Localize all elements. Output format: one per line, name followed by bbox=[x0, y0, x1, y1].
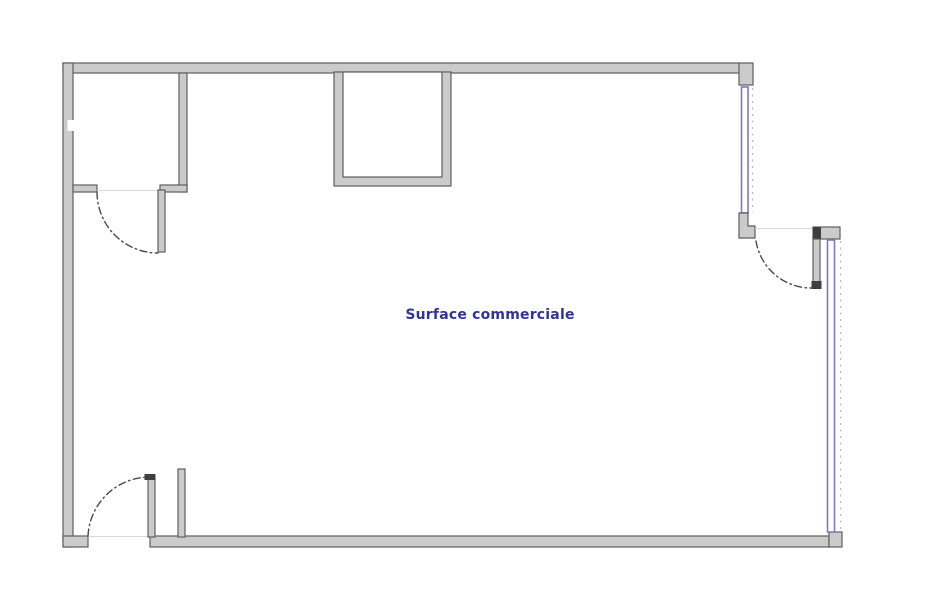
lower-right-window bbox=[828, 240, 835, 532]
service-door-leaf bbox=[148, 479, 155, 537]
floor-plan-page: Surface commerciale bbox=[0, 0, 926, 610]
entrance-door-leaf-cap bbox=[812, 281, 822, 289]
duct-shaft-interior bbox=[343, 72, 442, 177]
entrance-door-swing-arc bbox=[756, 241, 812, 288]
room-label: Surface commerciale bbox=[405, 307, 574, 323]
storage-room-bottom-wall-left bbox=[73, 185, 97, 192]
left-wall bbox=[63, 63, 73, 547]
left-wall-break-notch bbox=[68, 120, 75, 131]
bottom-wall bbox=[150, 536, 829, 547]
bottom-wall-pier bbox=[178, 469, 185, 537]
entrance-door-leaf bbox=[813, 239, 820, 284]
top-right-wall-post bbox=[739, 63, 753, 85]
storage-door-swing-arc bbox=[97, 192, 158, 253]
storage-room-right-wall bbox=[179, 73, 187, 192]
bottom-right-wall-post bbox=[829, 532, 842, 547]
entrance-hinge-block bbox=[813, 227, 821, 239]
right-mid-wall-post bbox=[739, 213, 755, 238]
service-door-swing-arc bbox=[88, 477, 149, 536]
service-door-leaf-cap bbox=[145, 474, 156, 480]
floor-plan-canvas bbox=[0, 0, 926, 610]
storage-door-leaf bbox=[158, 190, 165, 252]
upper-right-window bbox=[742, 87, 749, 213]
bottom-left-wall-foot bbox=[63, 536, 88, 547]
